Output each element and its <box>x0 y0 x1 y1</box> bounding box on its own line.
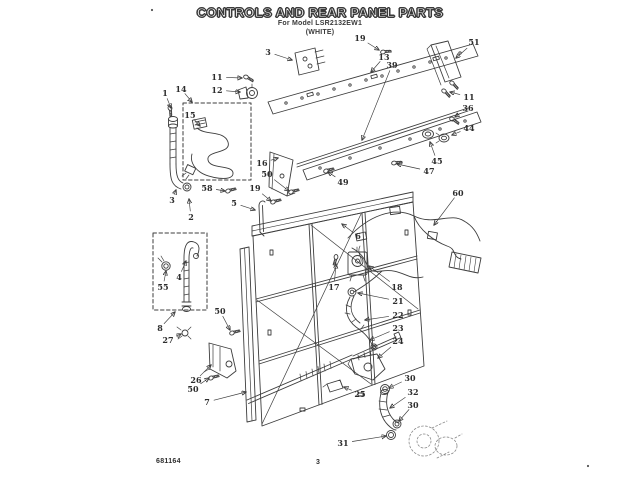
page-number: 3 <box>316 459 320 466</box>
callout-5: 5 <box>231 198 237 208</box>
callout-leader-8 <box>164 312 175 324</box>
pump-ghost-art <box>409 421 462 458</box>
callout-leader-31 <box>352 436 386 442</box>
callout-leader-32 <box>390 397 405 408</box>
callout-31: 31 <box>337 438 348 448</box>
callout-leader-19 <box>262 194 271 201</box>
callout-51: 51 <box>468 37 479 47</box>
callout-leader-5 <box>241 205 255 210</box>
callout-50: 50 <box>187 384 199 394</box>
doc-number: 681164 <box>156 458 181 465</box>
callout-leader-50 <box>274 180 289 191</box>
callout-58: 58 <box>201 183 213 193</box>
callout-leader-3 <box>174 190 176 194</box>
callout-leader-50 <box>201 378 209 384</box>
scan-artifact-dot <box>151 9 153 11</box>
callout-leader-2 <box>189 199 190 211</box>
callout-44: 44 <box>463 123 475 133</box>
callout-3: 3 <box>265 47 271 57</box>
callout-leader-47 <box>397 164 420 169</box>
callout-21: 21 <box>392 296 403 306</box>
callout-leader-11 <box>450 92 460 95</box>
callout-50: 50 <box>261 169 273 179</box>
callout-6: 6 <box>355 231 361 241</box>
callout-leader-51 <box>456 48 467 58</box>
callout-3: 3 <box>169 195 175 205</box>
callout-leader-30 <box>399 410 409 422</box>
callout-19: 19 <box>249 183 261 193</box>
callout-leader-24 <box>378 347 391 358</box>
callout-24: 24 <box>392 336 404 346</box>
pump-bracket-art <box>177 327 240 381</box>
callout-2: 2 <box>188 212 194 222</box>
callout-leader-25 <box>344 387 351 390</box>
callout-15: 15 <box>184 110 195 120</box>
callout-leader-3 <box>275 54 292 60</box>
callout-leader-60 <box>434 198 454 225</box>
callout-leader-14 <box>185 94 192 102</box>
callout-leader-11 <box>226 77 242 78</box>
callout-16: 16 <box>256 158 268 168</box>
callout-19: 19 <box>354 33 366 43</box>
callout-8: 8 <box>157 323 163 333</box>
callout-leader-23 <box>370 332 389 340</box>
callout-11: 11 <box>463 92 474 102</box>
callout-leader-26 <box>200 365 211 376</box>
hinge-pin-art <box>259 201 265 236</box>
callout-leader-6 <box>342 224 352 232</box>
side-trim-art <box>240 247 256 422</box>
callout-55: 55 <box>157 282 168 292</box>
scan-artifact-dot <box>587 465 589 467</box>
callout-30: 30 <box>407 400 419 410</box>
drain-outlet-art <box>348 354 385 380</box>
callout-leader-45 <box>430 142 435 155</box>
parts-catalog-page: CONTROLS AND REAR PANEL PARTS For Model … <box>0 0 640 480</box>
callout-leader-49 <box>328 172 335 177</box>
callout-14: 14 <box>175 84 187 94</box>
callout-17: 17 <box>328 282 339 292</box>
callout-leader-17 <box>335 264 337 281</box>
callout-leader-30 <box>389 382 402 388</box>
callout-1: 1 <box>162 88 168 98</box>
callout-18: 18 <box>391 282 403 292</box>
callout-4: 4 <box>176 272 182 282</box>
callout-leader-44 <box>452 132 460 135</box>
callout-36: 36 <box>462 103 474 113</box>
callout-11: 11 <box>211 72 222 82</box>
callout-60: 60 <box>452 188 464 198</box>
exploded-diagram-art: 1141511123191339511136444547325819516504… <box>0 0 640 480</box>
callout-leader-27 <box>177 334 182 336</box>
console-rear-panel-art <box>268 44 481 180</box>
callout-30: 30 <box>404 373 416 383</box>
callout-50: 50 <box>214 306 226 316</box>
console-switch-art <box>295 48 325 75</box>
callout-39: 39 <box>386 60 398 70</box>
callout-32: 32 <box>407 387 418 397</box>
callout-12: 12 <box>211 85 222 95</box>
plug-art <box>323 380 343 392</box>
pressure-switch-art <box>333 247 367 281</box>
callout-47: 47 <box>423 166 434 176</box>
callout-leader-50 <box>223 316 230 330</box>
callout-layer: 1141511123191339511136444547325819516504… <box>151 9 589 467</box>
callout-25: 25 <box>354 389 365 399</box>
callout-leader-7 <box>214 392 246 400</box>
console-end-bracket-art <box>269 152 295 196</box>
callout-leader-55 <box>164 271 166 281</box>
callout-49: 49 <box>337 177 349 187</box>
brace-rod-art <box>247 332 401 403</box>
callout-leader-19 <box>368 43 379 50</box>
drain-hose-art <box>379 385 401 440</box>
callout-23: 23 <box>392 323 404 333</box>
callout-leader-58 <box>216 190 225 192</box>
callout-7: 7 <box>204 397 210 407</box>
knob-caps-art <box>423 130 450 143</box>
callout-22: 22 <box>392 310 403 320</box>
callout-leader-21 <box>358 293 389 299</box>
callout-45: 45 <box>431 156 442 166</box>
callout-27: 27 <box>162 335 173 345</box>
callout-leader-16 <box>271 158 278 160</box>
